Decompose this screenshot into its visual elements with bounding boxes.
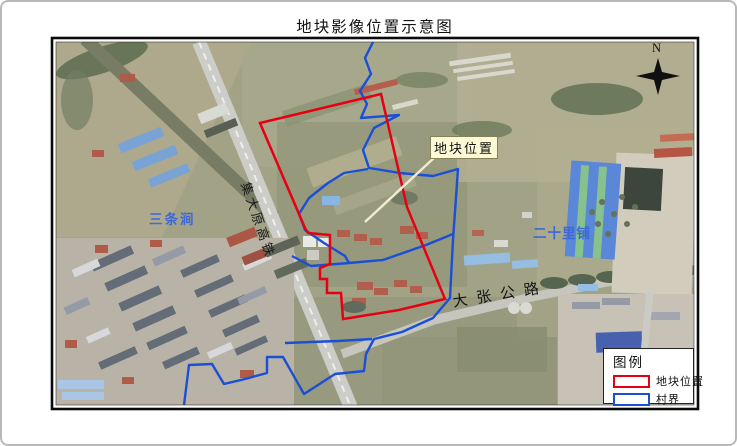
place-label-ershilipu: 二十里铺 xyxy=(533,222,591,242)
figure-canvas: 地块影像位置示意图 xyxy=(0,0,737,446)
legend-label-village: 村界 xyxy=(656,391,680,407)
legend: 图例 地块位置 村界 xyxy=(603,348,694,404)
legend-row-village: 村界 xyxy=(613,391,693,407)
north-label: N xyxy=(652,41,661,56)
village-outline-swatch xyxy=(613,393,650,406)
plot-outline-swatch xyxy=(613,375,650,388)
legend-label-plot: 地块位置 xyxy=(656,373,704,389)
legend-title: 图例 xyxy=(613,351,693,371)
legend-row-plot: 地块位置 xyxy=(613,373,693,389)
plot-location-callout: 地块位置 xyxy=(430,136,498,159)
place-label-santiaojian: 三条涧 xyxy=(149,208,196,228)
